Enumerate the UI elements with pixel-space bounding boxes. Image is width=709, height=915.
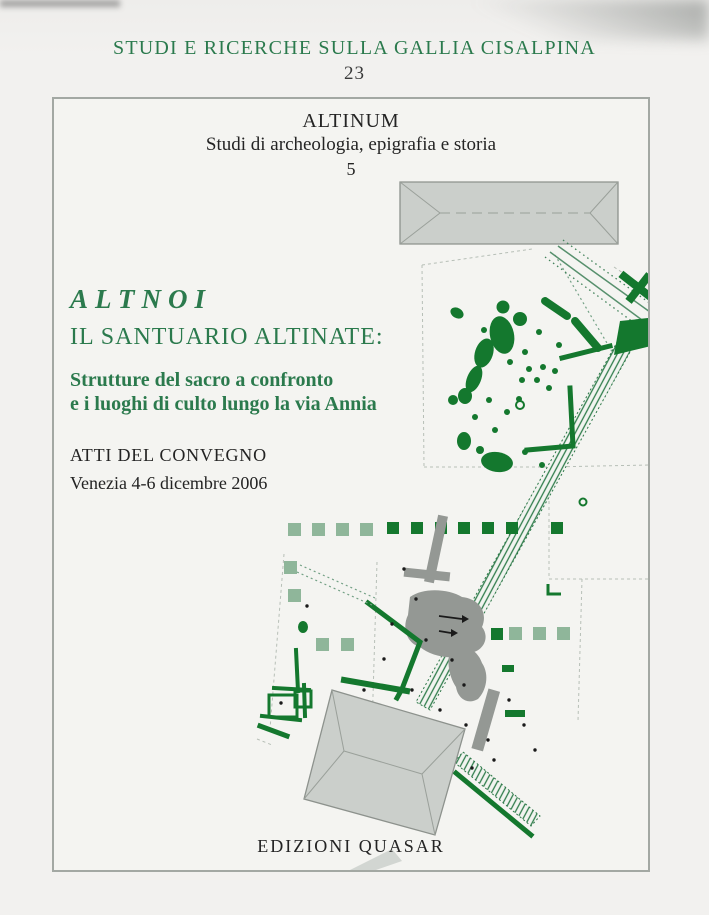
book-title: IL SANTUARIO ALTINATE:: [70, 324, 384, 351]
via-annia-road-south: [454, 752, 540, 826]
event-block: ATTI DEL CONVEGNO Venezia 4-6 dicembre 2…: [70, 445, 267, 494]
book-subtitle-line1: Strutture del sacro a confronto: [70, 368, 384, 392]
book-subtitle-line2: e i luoghi di culto lungo la via Annia: [70, 392, 384, 416]
roof-building-north-icon: [400, 182, 618, 244]
sanctuary-structures: [448, 301, 598, 506]
event-venue-date: Venezia 4-6 dicembre 2006: [70, 473, 267, 494]
title-block: ALTNOI IL SANTUARIO ALTINATE: Strutture …: [70, 284, 384, 416]
event-type: ATTI DEL CONVEGNO: [70, 445, 267, 466]
cover-frame: ALTINUM Studi di archeologia, epigrafia …: [52, 97, 650, 872]
roof-building-south-icon: [304, 690, 465, 835]
scan-shadow-top-right: [419, 0, 709, 40]
publisher-name: EDIZIONI QUASAR: [54, 836, 648, 857]
series-number: 23: [0, 63, 709, 85]
book-cover: { "series": { "title": "STUDI E RICERCHE…: [0, 0, 709, 915]
series-title: STUDI E RICERCHE SULLA GALLIA CISALPINA: [0, 37, 709, 60]
title-latin: ALTNOI: [70, 284, 384, 315]
southwest-structures: [260, 621, 311, 736]
scan-mark-top-left: [0, 0, 120, 7]
